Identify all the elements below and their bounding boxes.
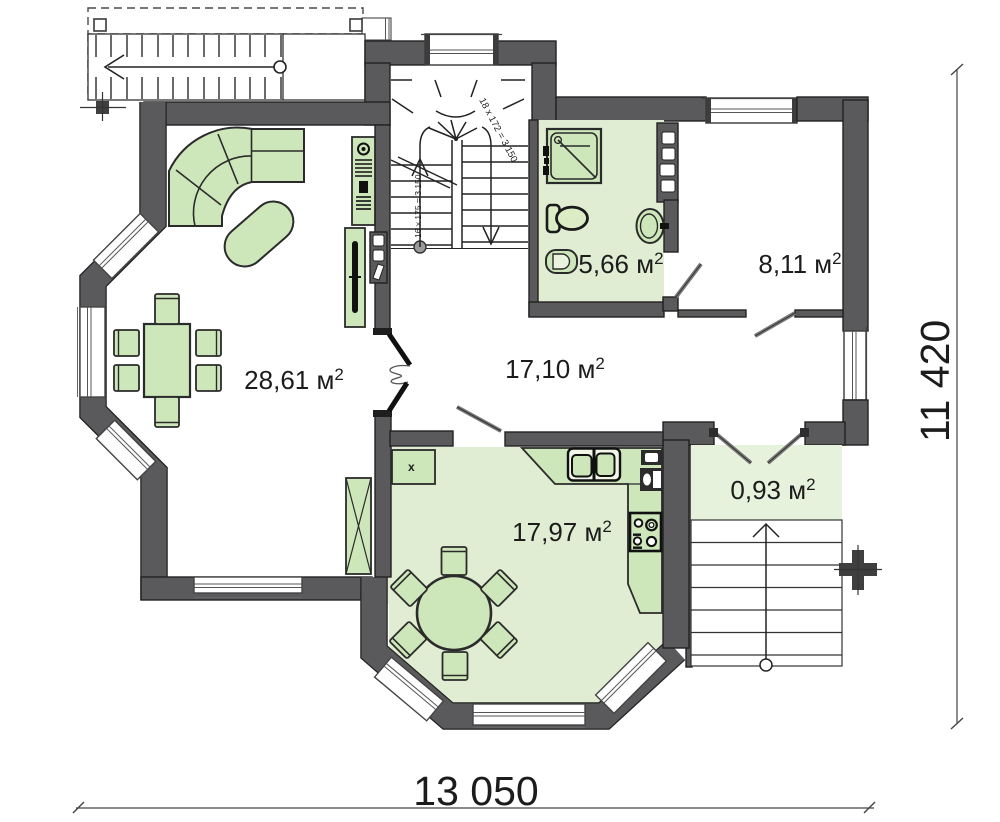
- svg-text:17,97 м2: 17,97 м2: [512, 517, 612, 547]
- svg-text:11 420: 11 420: [912, 320, 958, 442]
- svg-text:28,61 м2: 28,61 м2: [244, 365, 344, 395]
- svg-text:x: x: [408, 460, 415, 474]
- svg-text:13 050: 13 050: [413, 768, 538, 814]
- svg-text:16 x 175 = 3 150: 16 x 175 = 3 150: [413, 174, 423, 238]
- svg-text:17,10 м2: 17,10 м2: [505, 354, 605, 384]
- svg-text:0,93 м2: 0,93 м2: [730, 475, 815, 505]
- svg-text:8,11 м2: 8,11 м2: [758, 249, 841, 279]
- svg-text:5,66 м2: 5,66 м2: [578, 249, 663, 279]
